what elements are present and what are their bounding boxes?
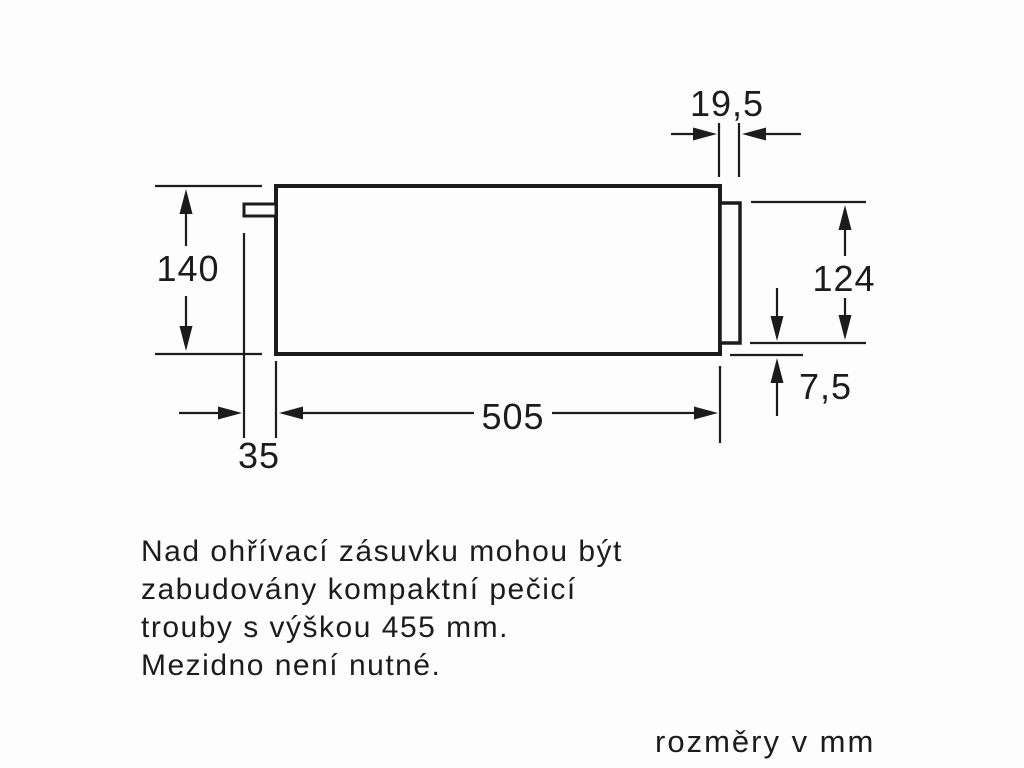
dim-label-front-panel-height: 124 <box>812 258 875 299</box>
dim-label-front-panel-protrusion: 19,5 <box>690 83 764 124</box>
dimension-body-depth: 505 <box>276 361 720 443</box>
dimension-front-panel-height: 124 <box>750 202 876 343</box>
arrowhead-down-icon <box>180 326 193 351</box>
arrowhead-left-icon <box>742 128 766 141</box>
arrowhead-down-icon <box>771 316 784 341</box>
arrowhead-up-icon <box>180 189 193 214</box>
rear-tab-outline <box>244 204 276 216</box>
note-line: Mezidno není nutné. <box>141 647 623 685</box>
arrowhead-right-icon <box>218 407 242 420</box>
dim-label-bottom-overlap: 7,5 <box>799 366 852 407</box>
arrowhead-up-icon <box>771 358 784 383</box>
appliance-body-outline <box>276 186 720 354</box>
appliance-outline <box>244 186 740 354</box>
note-line: trouby s výškou 455 mm. <box>141 609 623 647</box>
dimension-bottom-overlap: 7,5 <box>730 288 852 416</box>
appliance-dimension-sheet: 19,5 140 124 7, <box>0 0 1024 768</box>
dimension-front-panel-protrusion: 19,5 <box>671 83 801 177</box>
arrowhead-right-icon <box>693 128 717 141</box>
front-panel-outline <box>720 203 740 343</box>
arrowhead-left-icon <box>279 407 303 420</box>
dim-label-body-depth: 505 <box>481 396 544 437</box>
dim-label-niche-height: 140 <box>156 248 219 289</box>
arrowhead-up-icon <box>839 205 852 230</box>
dim-label-rear-offset: 35 <box>238 435 280 476</box>
installation-note: Nad ohřívací zásuvku mohou být zabudován… <box>141 533 623 685</box>
arrowhead-down-icon <box>839 315 852 340</box>
arrowhead-right-icon <box>694 407 718 420</box>
units-caption: rozměry v mm <box>655 724 875 760</box>
note-line: Nad ohřívací zásuvku mohou být <box>141 533 623 571</box>
note-line: zabudovány kompaktní pečicí <box>141 571 623 609</box>
